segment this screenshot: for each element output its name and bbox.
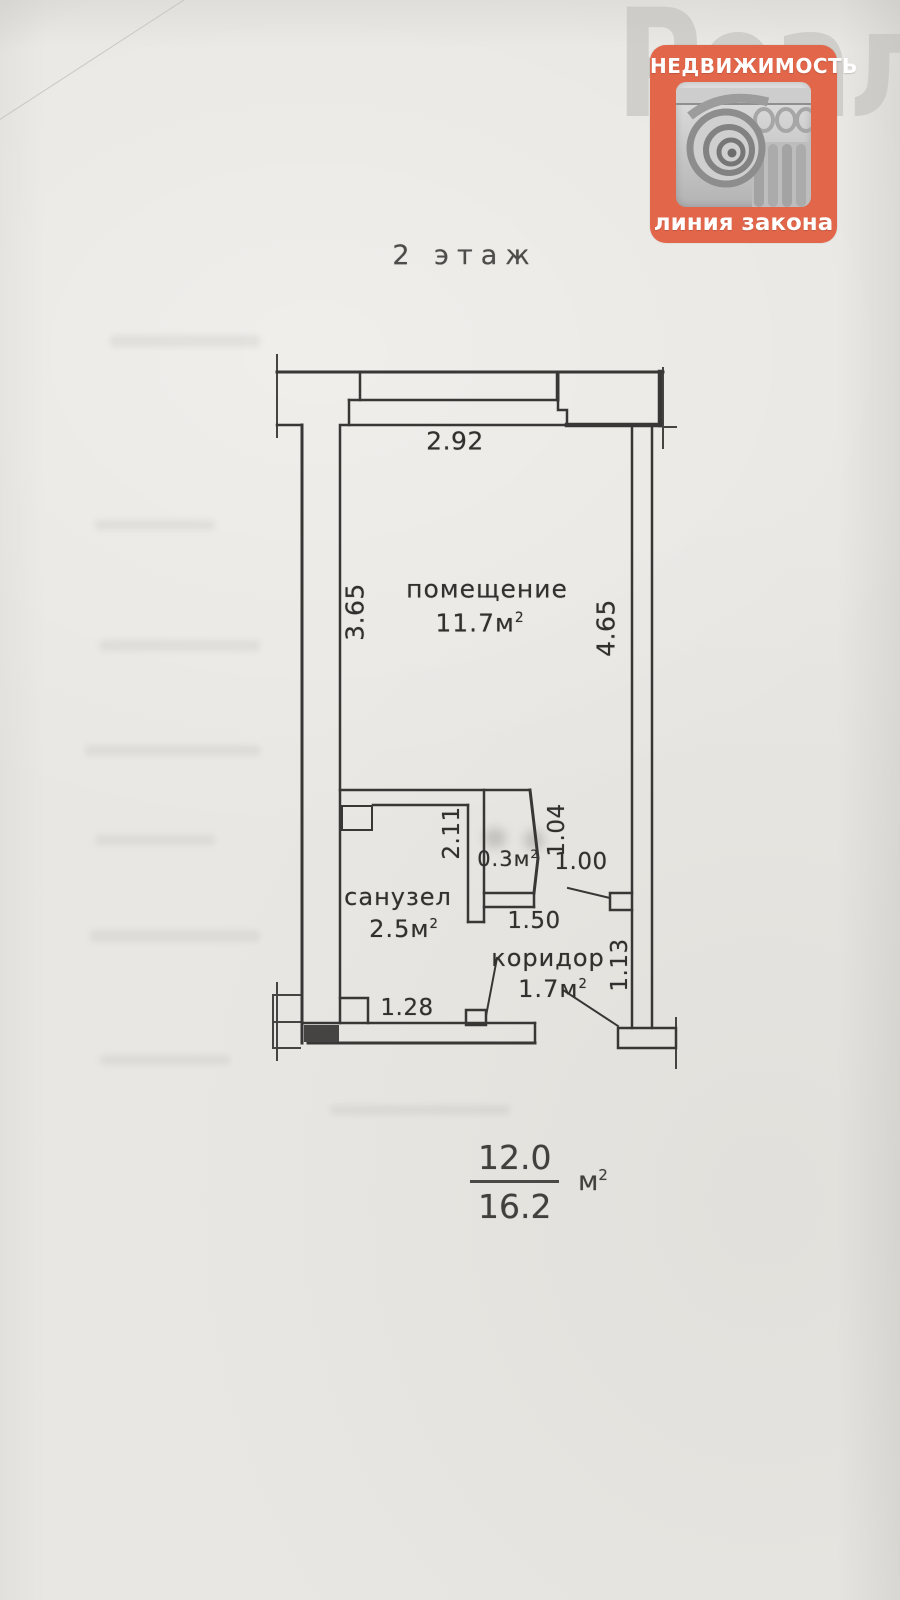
logo-top-text: НЕДВИЖИМОСТЬ xyxy=(650,54,837,78)
room-label-bathroom: санузел xyxy=(344,883,452,911)
agency-logo: НЕДВИЖИМОСТЬ линия закона xyxy=(650,45,837,243)
dim-right-height: 4.65 xyxy=(592,599,621,657)
dim-corridor-height: 1.13 xyxy=(607,938,633,991)
dim-corridor-width: 1.50 xyxy=(507,908,560,934)
dim-door-width: 1.00 xyxy=(554,849,607,875)
dim-bathroom-height: 2.11 xyxy=(439,806,465,859)
room-label-corridor: коридор xyxy=(491,944,605,972)
column-capital-image xyxy=(676,82,811,207)
room-label-main: помещение xyxy=(406,575,568,604)
logo-bottom-text: линия закона xyxy=(650,210,837,236)
room-area-corridor: 1.7м2 xyxy=(518,975,588,1003)
dim-left-height: 3.65 xyxy=(341,583,370,641)
room-area-main: 11.7м2 xyxy=(435,609,524,638)
scanned-page: Реалт НЕДВИЖИМОСТЬ линия з xyxy=(0,0,900,1600)
dim-top-width: 2.92 xyxy=(426,427,484,456)
room-area-closet: 0.3м2 xyxy=(477,847,539,871)
room-area-bathroom: 2.5м2 xyxy=(369,915,439,943)
dim-bathroom-width: 1.28 xyxy=(380,995,433,1021)
